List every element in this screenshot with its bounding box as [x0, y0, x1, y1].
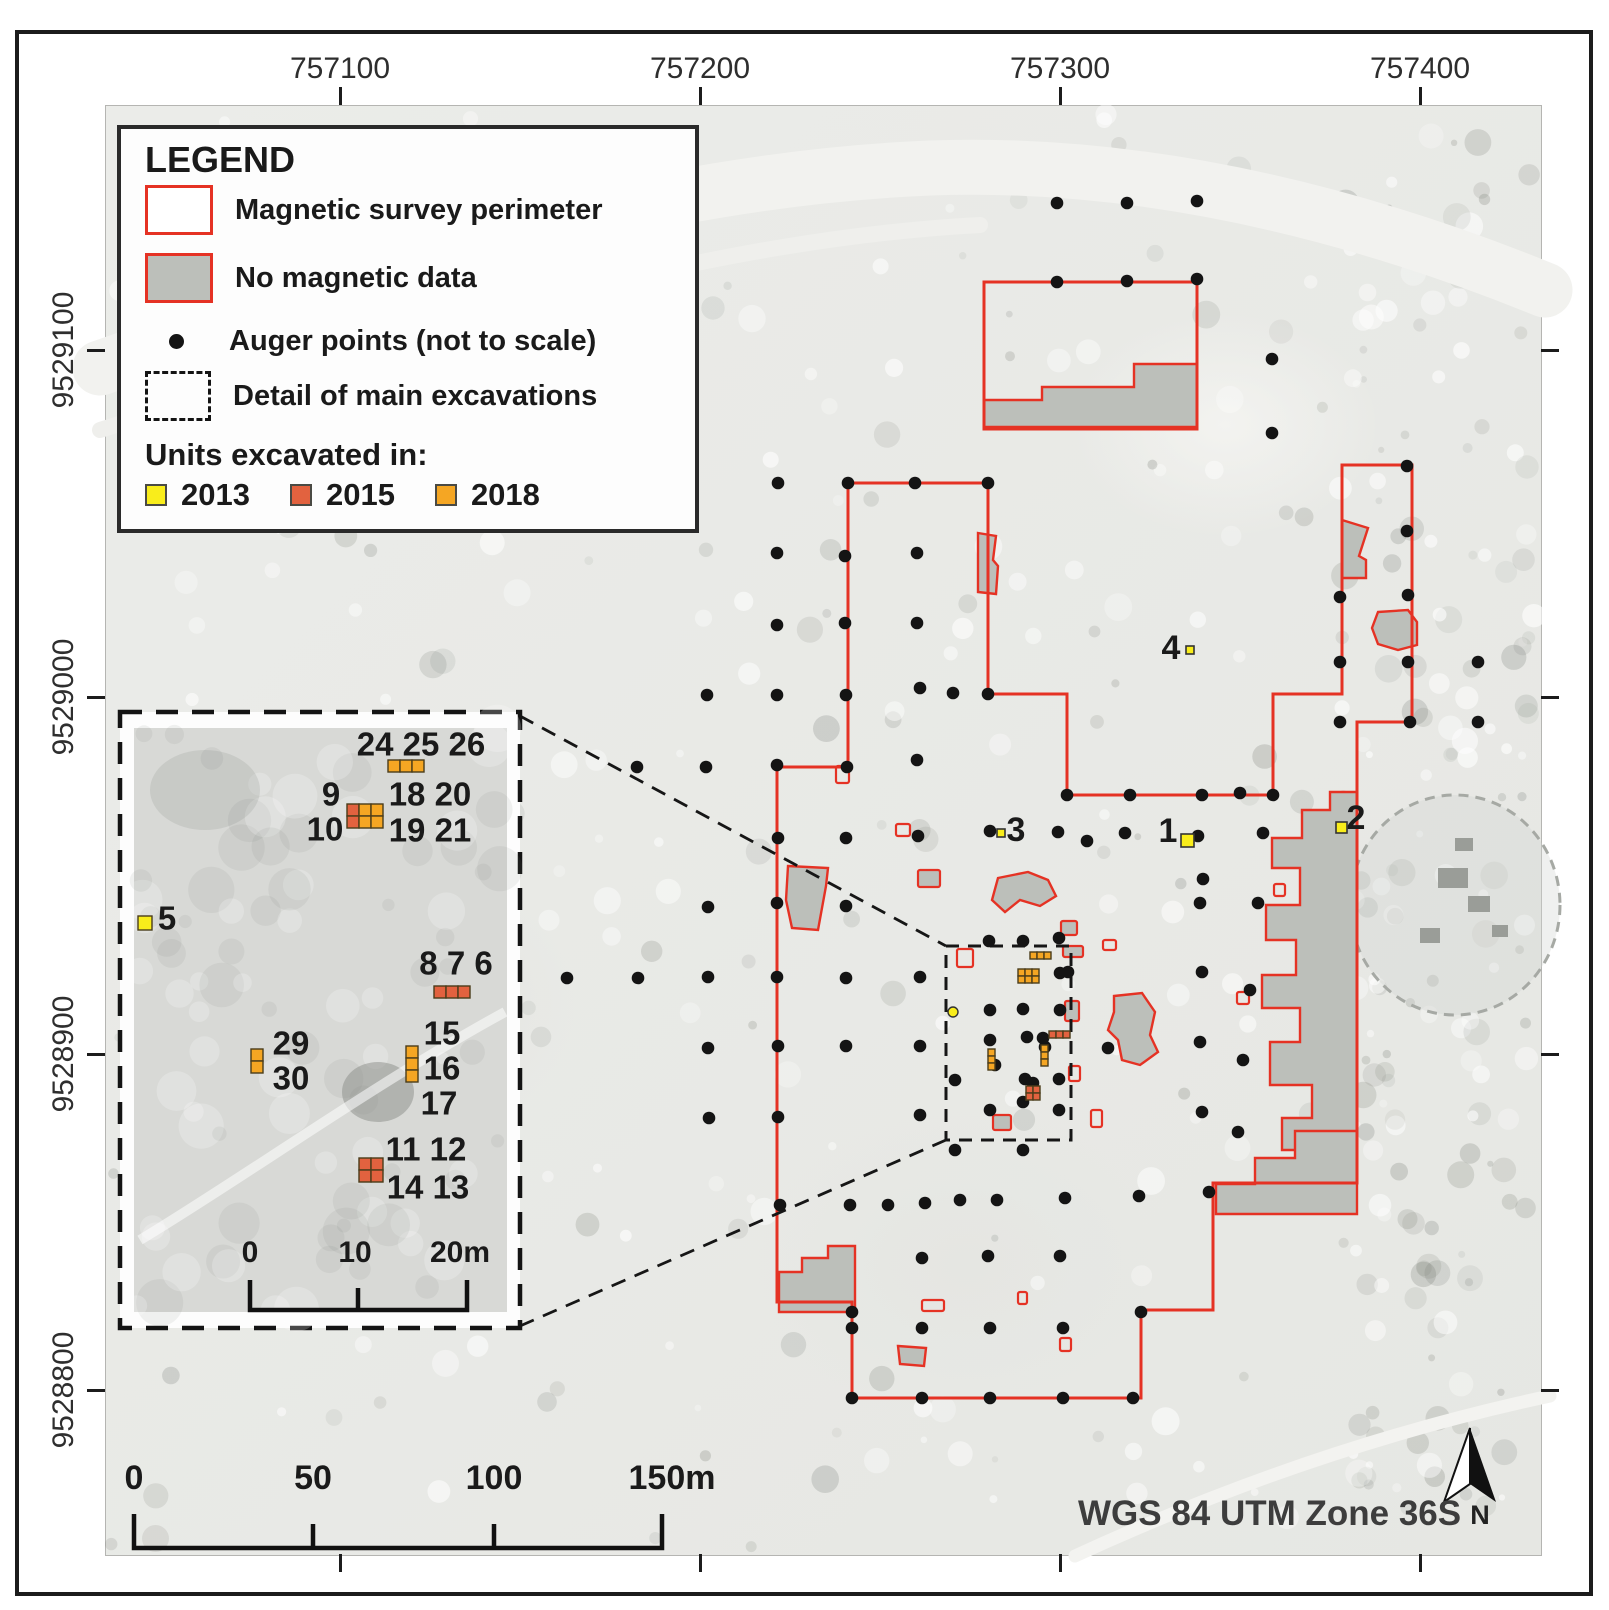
inset-unit-label: 5 [158, 900, 176, 937]
auger-point [916, 1392, 929, 1405]
legend-title: LEGEND [145, 139, 295, 181]
auger-point [1194, 897, 1207, 910]
unit-2-label: 2 [1347, 799, 1366, 837]
auger-point [983, 935, 996, 948]
auger-point [919, 1197, 932, 1210]
auger-point [839, 550, 852, 563]
auger-point [771, 971, 784, 984]
auger-point [846, 1392, 859, 1405]
legend-item-detail: Detail of main excavations [145, 371, 597, 421]
excavation-unit-cell [1025, 969, 1032, 976]
excavation-unit-cell [347, 804, 359, 816]
auger-point [774, 1199, 787, 1212]
red-accent-shape [1061, 921, 1077, 935]
excavation-unit-cell [1025, 976, 1032, 983]
auger-point [911, 754, 924, 767]
auger-point [984, 1034, 997, 1047]
auger-point [909, 477, 922, 490]
excavation-unit-cell [1041, 1045, 1048, 1052]
scalebar-label: 20m [430, 1236, 490, 1269]
scalebar-label: 10 [338, 1236, 371, 1269]
auger-point [1266, 353, 1279, 366]
auger-point [1472, 656, 1485, 669]
auger-point [771, 547, 784, 560]
red-accent-shape [1063, 946, 1083, 957]
inset-unit-label: 11 12 [386, 1131, 467, 1168]
auger-point [703, 1112, 716, 1125]
excavation-year-item: 2013 [145, 477, 250, 513]
no-magnetic-data-areas [779, 364, 1417, 1366]
axis-tick [1059, 1554, 1062, 1572]
inset-unit-label: 17 [421, 1085, 458, 1122]
excavation-unit-cell [371, 804, 383, 816]
auger-point-swatch [145, 334, 207, 349]
excavation-unit-cell [988, 1049, 995, 1056]
auger-point [702, 901, 715, 914]
auger-point [1252, 897, 1265, 910]
auger-point [1054, 1004, 1067, 1017]
auger-point [844, 1199, 857, 1212]
units-excavated-title: Units excavated in: [145, 437, 428, 473]
auger-point [947, 687, 960, 700]
auger-point [1119, 827, 1132, 840]
auger-point [1203, 1186, 1216, 1199]
excavation-years-row: 201320152018 [145, 477, 540, 513]
auger-point [561, 972, 574, 985]
inset-unit-label: 10 [307, 811, 344, 848]
auger-point [1054, 1250, 1067, 1263]
auger-point [1197, 873, 1210, 886]
auger-point [1133, 1190, 1146, 1203]
red-accent-shape [1274, 884, 1285, 896]
axis-label-easting: 757100 [290, 52, 390, 86]
auger-point [840, 832, 853, 845]
auger-point [949, 1074, 962, 1087]
auger-point [772, 1040, 785, 1053]
inset-unit-label: 19 21 [389, 812, 472, 849]
auger-point [1062, 966, 1075, 979]
no-magnetic-data-polygon [1262, 792, 1357, 1178]
auger-point [700, 761, 713, 774]
auger-point [1127, 1392, 1140, 1405]
unit-4-square [1186, 646, 1194, 654]
excavation-unit-cell [371, 1158, 383, 1170]
auger-point [1102, 1042, 1115, 1055]
excavation-unit-cell [251, 1049, 263, 1061]
auger-point [771, 689, 784, 702]
axis-tick [87, 349, 105, 352]
axis-tick [1419, 1554, 1422, 1572]
auger-point [914, 682, 927, 695]
auger-point [1052, 826, 1065, 839]
scalebar-label: 150m [629, 1459, 716, 1497]
excavation-unit-cell [1044, 952, 1051, 959]
no-magnetic-data-polygon [984, 364, 1197, 427]
axis-tick [1541, 1389, 1559, 1392]
red-accent-shape [1091, 1110, 1102, 1127]
unit-3-square [997, 829, 1005, 837]
excavation-unit-cell [251, 1061, 263, 1073]
auger-point [1081, 835, 1094, 848]
excavation-unit-cell [347, 816, 359, 828]
inset-unit-label: 15 [424, 1015, 461, 1052]
excavation-unit-cell [988, 1063, 995, 1070]
axis-tick [339, 1554, 342, 1572]
excavation-unit-cell [359, 804, 371, 816]
excavation-unit-cell [988, 1056, 995, 1063]
excavation-year-item: 2018 [435, 477, 540, 513]
detail-extent-swatch [145, 371, 211, 421]
legend-item-perimeter: Magnetic survey perimeter [145, 185, 602, 235]
red-accent-shape [1018, 1292, 1027, 1304]
excavation-unit-cell [371, 1170, 383, 1182]
auger-point [954, 1194, 967, 1207]
auger-point [772, 1111, 785, 1124]
auger-point [1051, 276, 1064, 289]
auger-point [1057, 1392, 1070, 1405]
auger-point [846, 1322, 859, 1335]
auger-point [984, 825, 997, 838]
red-accent-shape [1060, 1338, 1071, 1351]
auger-point [984, 1322, 997, 1335]
auger-point [1237, 1054, 1250, 1067]
axis-label-easting: 757300 [1010, 52, 1110, 86]
auger-point [1017, 1003, 1030, 1016]
auger-point [840, 1040, 853, 1053]
axis-tick [339, 87, 342, 105]
legend-item-label: Auger points (not to scale) [229, 325, 596, 358]
inset-unit-label: 29 [273, 1025, 310, 1062]
auger-point [1232, 1126, 1245, 1139]
year-label: 2018 [471, 477, 540, 513]
legend-item-label: No magnetic data [235, 262, 477, 295]
auger-point [1059, 1192, 1072, 1205]
unit-2-square [1336, 822, 1347, 833]
excavation-unit-cell [434, 986, 446, 998]
auger-point [1017, 935, 1030, 948]
no-magnetic-data-polygon [992, 872, 1056, 912]
excavation-unit-cell [1033, 1086, 1040, 1093]
auger-point [1121, 275, 1134, 288]
auger-point [772, 477, 785, 490]
auger-point [1121, 197, 1134, 210]
auger-point [771, 897, 784, 910]
red-accent-shape [957, 949, 973, 967]
axis-tick [1419, 87, 1422, 105]
red-accent-shape [922, 1300, 944, 1311]
legend: LEGEND Magnetic survey perimeter No magn… [117, 125, 699, 533]
excavation-unit-cell [1056, 1031, 1063, 1038]
excavation-unit-cell [359, 816, 371, 828]
auger-point [1135, 1306, 1148, 1319]
auger-point [1196, 789, 1209, 802]
inset-unit-label: 9 [322, 776, 340, 813]
yellow-auger-point [948, 1007, 958, 1017]
auger-point [912, 830, 925, 843]
unit-3-label: 3 [1007, 811, 1026, 849]
auger-point [1404, 716, 1417, 729]
auger-point [914, 1109, 927, 1122]
auger-point [916, 1322, 929, 1335]
auger-point [1401, 460, 1414, 473]
excavation-year-item: 2015 [290, 477, 395, 513]
axis-tick [87, 1389, 105, 1392]
auger-point [1266, 427, 1279, 440]
inset-unit-label: 16 [424, 1050, 461, 1087]
north-arrow-right-half [1470, 1428, 1496, 1502]
auger-point [1234, 787, 1247, 800]
auger-point [701, 689, 714, 702]
auger-point [839, 617, 852, 630]
auger-point [984, 1104, 997, 1117]
auger-point [914, 971, 927, 984]
auger-point [840, 972, 853, 985]
no-magnetic-data-polygon [898, 1346, 926, 1366]
auger-point [916, 1252, 929, 1265]
scalebar-label: 100 [466, 1459, 523, 1497]
detail-extent-rect [946, 946, 1071, 1140]
auger-point [1051, 197, 1064, 210]
red-accent-shape [1103, 940, 1116, 950]
auger-point [914, 1040, 927, 1053]
axis-label-northing: 9528800 [47, 1332, 81, 1449]
scalebar-label: 50 [294, 1459, 332, 1497]
red-accent-shape [896, 824, 910, 836]
axis-label-northing: 9529000 [47, 639, 81, 756]
auger-point [840, 900, 853, 913]
auger-point [882, 1199, 895, 1212]
axis-tick [1059, 87, 1062, 105]
auger-point [840, 689, 853, 702]
auger-point [1053, 1073, 1066, 1086]
auger-point [841, 761, 854, 774]
axis-tick [1541, 349, 1559, 352]
village-compound [1350, 795, 1560, 1015]
auger-point [702, 971, 715, 984]
main-scale-bar: 050100150m [125, 1459, 716, 1548]
legend-item-auger: Auger points (not to scale) [145, 325, 596, 358]
legend-item-nodata: No magnetic data [145, 253, 477, 303]
inset-unit-label: 24 25 26 [357, 726, 485, 763]
auger-point [982, 688, 995, 701]
excavation-unit-cell [1041, 1059, 1048, 1066]
excavation-unit-cell [1037, 952, 1044, 959]
excavation-unit-cell [406, 1046, 418, 1058]
auger-point [1053, 1104, 1066, 1117]
auger-point [1061, 789, 1074, 802]
axis-label-northing: 9529100 [47, 292, 81, 409]
excavation-unit-cell [458, 986, 470, 998]
excavation-unit-cell [1049, 1031, 1056, 1038]
inset-unit-label: 30 [273, 1060, 310, 1097]
unit-1-label: 1 [1159, 812, 1178, 850]
auger-point [1017, 1144, 1030, 1157]
auger-point [632, 972, 645, 985]
auger-point [1334, 656, 1347, 669]
excavation-unit-cell [371, 816, 383, 828]
auger-point [1053, 932, 1066, 945]
excavation-unit-cell [406, 1058, 418, 1070]
no-magnetic-data-polygon [786, 866, 828, 930]
year-label: 2013 [181, 477, 250, 513]
auger-point [911, 617, 924, 630]
axis-tick [1541, 696, 1559, 699]
excavation-unit-cell [1018, 969, 1025, 976]
auger-point [984, 1004, 997, 1017]
excavation-unit-cell [446, 986, 458, 998]
auger-point [772, 832, 785, 845]
excavation-unit-cell [1032, 969, 1039, 976]
auger-point [1334, 591, 1347, 604]
axis-label-easting: 757200 [650, 52, 750, 86]
axis-tick [1541, 1053, 1559, 1056]
auger-point [1334, 716, 1347, 729]
excavation-unit-cell [1063, 1031, 1070, 1038]
excavation-unit-cell [406, 1070, 418, 1082]
axis-tick [699, 87, 702, 105]
auger-point [1196, 966, 1209, 979]
excavation-unit-cell [359, 1170, 371, 1182]
auger-point [991, 1194, 1004, 1207]
auger-point [842, 477, 855, 490]
auger-point [1472, 716, 1485, 729]
legend-item-label: Magnetic survey perimeter [235, 194, 602, 227]
excavation-unit-cell [1032, 976, 1039, 983]
scalebar-label: 0 [125, 1459, 144, 1497]
auger-point [984, 1392, 997, 1405]
auger-point [1402, 656, 1415, 669]
axis-label-easting: 757400 [1370, 52, 1470, 86]
auger-point [846, 1306, 859, 1319]
auger-point [1196, 1106, 1209, 1119]
axis-tick [699, 1554, 702, 1572]
auger-point [1401, 525, 1414, 538]
excavation-unit-cell [138, 916, 152, 930]
auger-point [949, 1144, 962, 1157]
axis-tick [87, 1053, 105, 1056]
no-magnetic-data-swatch [145, 253, 213, 303]
no-magnetic-data-polygon [1372, 610, 1417, 650]
year-color-swatch [145, 484, 167, 506]
auger-point [1257, 827, 1270, 840]
scalebar-label: 0 [242, 1236, 259, 1269]
auger-point [1402, 589, 1415, 602]
auger-point [1191, 273, 1204, 286]
excavation-unit-cell [1018, 976, 1025, 983]
excavation-unit-cell [1030, 952, 1037, 959]
auger-point [982, 477, 995, 490]
auger-point [1021, 1031, 1034, 1044]
auger-point [982, 1250, 995, 1263]
crs-label: WGS 84 UTM Zone 36S [1078, 1494, 1461, 1534]
excavation-unit-cell [359, 1158, 371, 1170]
inset-unit-label: 18 20 [389, 776, 472, 813]
auger-point [702, 1042, 715, 1055]
year-label: 2015 [326, 477, 395, 513]
unit-1-square [1181, 834, 1194, 847]
north-label: N [1470, 1500, 1490, 1530]
excavation-unit-cell [1033, 1093, 1040, 1100]
red-accent-shape [918, 870, 940, 887]
auger-point [911, 547, 924, 560]
year-color-swatch [290, 484, 312, 506]
excavation-unit-cell [1026, 1086, 1033, 1093]
inset-unit-label: 8 7 6 [419, 945, 492, 982]
auger-point [1244, 984, 1257, 997]
excavation-unit-cell [1026, 1093, 1033, 1100]
unit-4-label: 4 [1162, 629, 1181, 667]
legend-item-label: Detail of main excavations [233, 380, 597, 413]
excavation-unit-cell [1041, 1052, 1048, 1059]
auger-point [771, 619, 784, 632]
auger-point [771, 759, 784, 772]
inset-unit-label: 14 13 [387, 1169, 470, 1206]
red-accent-shape [993, 1115, 1011, 1130]
auger-point [1191, 195, 1204, 208]
survey-accent-shapes [836, 766, 1285, 1351]
axis-tick [87, 696, 105, 699]
auger-point [631, 761, 644, 774]
auger-point [1267, 789, 1280, 802]
year-color-swatch [435, 484, 457, 506]
no-magnetic-data-polygon [1342, 520, 1368, 578]
axis-label-northing: 9528900 [47, 996, 81, 1113]
magnetic-survey-perimeter-swatch [145, 185, 213, 235]
auger-point [1194, 1036, 1207, 1049]
map-figure: { "footer": { "crs_label": "WGS 84 UTM Z… [0, 0, 1609, 1610]
auger-point [1124, 789, 1137, 802]
auger-point [1057, 1322, 1070, 1335]
